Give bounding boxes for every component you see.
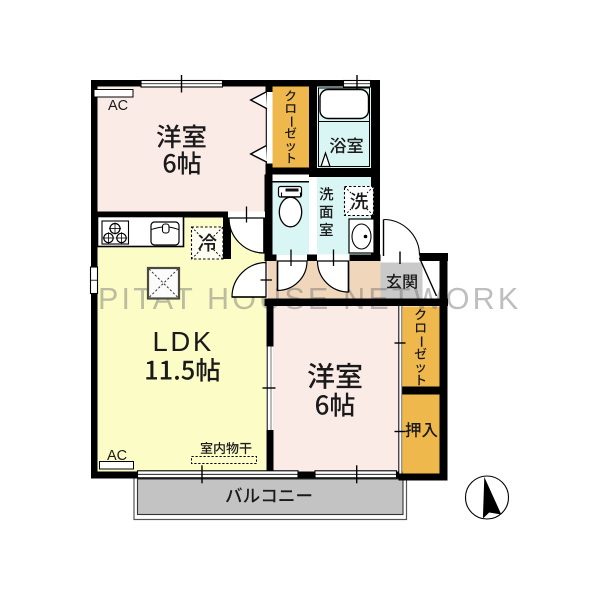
svg-text:AC: AC <box>108 98 128 114</box>
svg-text:LDK: LDK <box>153 326 214 357</box>
